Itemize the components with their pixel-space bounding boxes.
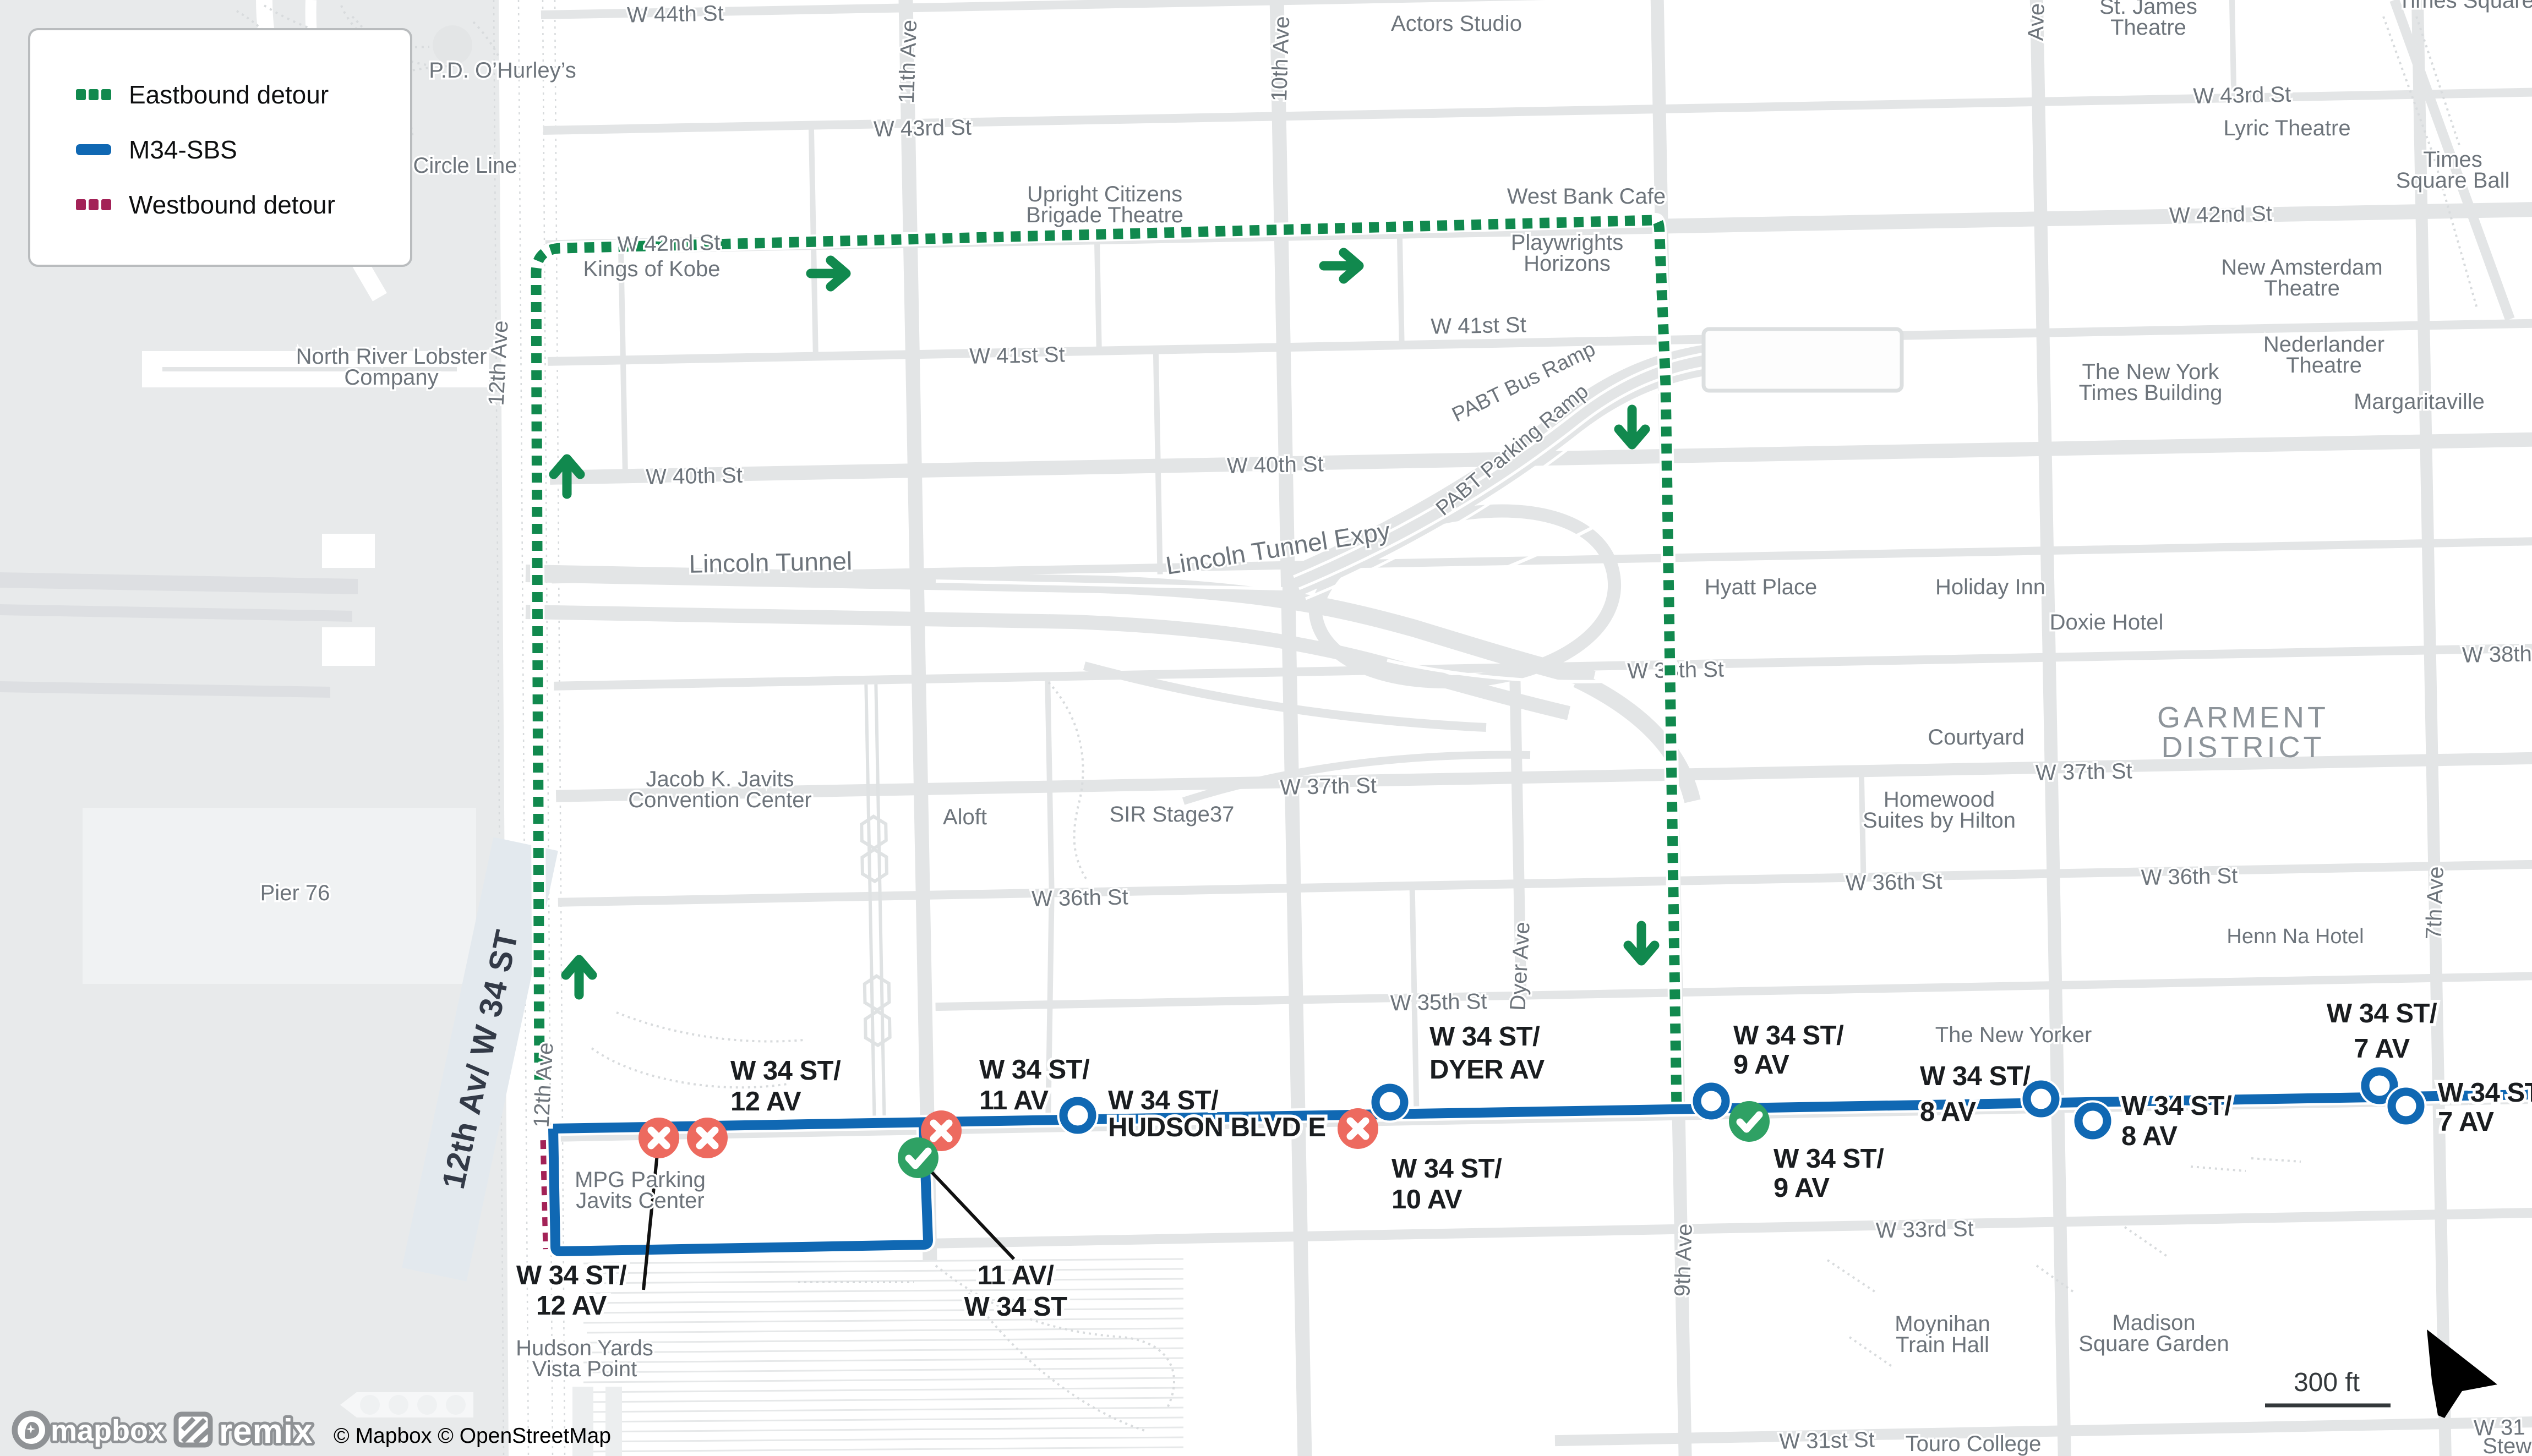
svg-text:W 38th St: W 38th St xyxy=(2462,641,2532,667)
svg-text:10 AV: 10 AV xyxy=(1391,1185,1463,1214)
svg-text:W 34 ST/: W 34 ST/ xyxy=(1108,1086,1219,1115)
svg-text:W 44th St: W 44th St xyxy=(627,1,724,27)
svg-text:W 36th St: W 36th St xyxy=(1845,869,1942,895)
svg-text:W 37th St: W 37th St xyxy=(1280,774,1377,800)
svg-text:W 34 ST/: W 34 ST/ xyxy=(730,1056,841,1086)
svg-text:Pier 76: Pier 76 xyxy=(260,881,330,905)
svg-text:W 41st St: W 41st St xyxy=(1431,313,1526,338)
svg-text:Javits Center: Javits Center xyxy=(576,1189,704,1213)
svg-text:7 AV: 7 AV xyxy=(2354,1034,2410,1064)
svg-text:W 43rd St: W 43rd St xyxy=(874,116,972,141)
svg-text:Henn Na Hotel: Henn Na Hotel xyxy=(2227,925,2364,948)
svg-text:W 42nd St: W 42nd St xyxy=(617,231,721,257)
svg-text:300 ft: 300 ft xyxy=(2294,1368,2360,1397)
svg-text:W 40th St: W 40th St xyxy=(1227,452,1324,478)
svg-text:W 34 ST/: W 34 ST/ xyxy=(2327,999,2437,1028)
svg-text:Lyric Theatre: Lyric Theatre xyxy=(2223,116,2350,140)
svg-text:Times Square: Times Square xyxy=(2398,0,2532,13)
svg-text:M34-SBS: M34-SBS xyxy=(129,135,237,164)
svg-text:12th Ave: 12th Ave xyxy=(530,1042,558,1128)
svg-text:DISTRICT: DISTRICT xyxy=(2162,731,2325,764)
svg-text:mapbox: mapbox xyxy=(51,1414,165,1447)
svg-text:West Bank Cafe: West Bank Cafe xyxy=(1507,184,1666,209)
svg-text:W 31st St: W 31st St xyxy=(1779,1428,1875,1454)
svg-text:Hyatt Place: Hyatt Place xyxy=(1705,575,1818,599)
svg-text:Aloft: Aloft xyxy=(943,805,987,829)
svg-text:Eastbound detour: Eastbound detour xyxy=(129,80,329,109)
svg-text:Horizons: Horizons xyxy=(1524,251,1611,276)
svg-text:Convention Center: Convention Center xyxy=(628,788,812,812)
svg-text:Stewart: Stewart xyxy=(2482,1434,2532,1456)
svg-text:Kings of Kobe: Kings of Kobe xyxy=(583,257,720,281)
svg-text:9 AV: 9 AV xyxy=(1733,1050,1789,1080)
svg-text:Margaritaville: Margaritaville xyxy=(2354,390,2485,414)
svg-text:W 43rd St: W 43rd St xyxy=(2193,83,2291,108)
svg-text:Touro College: Touro College xyxy=(1906,1432,2042,1456)
svg-text:W 37th St: W 37th St xyxy=(2036,759,2132,785)
svg-text:W 41st St: W 41st St xyxy=(969,342,1065,368)
svg-text:Company: Company xyxy=(344,365,438,390)
svg-text:Square Ball: Square Ball xyxy=(2396,168,2510,193)
svg-text:W 34 ST: W 34 ST xyxy=(964,1292,1067,1322)
svg-text:DYER AV: DYER AV xyxy=(1429,1055,1545,1085)
svg-text:W 34 ST/: W 34 ST/ xyxy=(1920,1061,2031,1091)
svg-text:12th Ave: 12th Ave xyxy=(484,320,513,406)
svg-text:W 34 ST/: W 34 ST/ xyxy=(979,1055,1090,1085)
svg-text:Doxie Hotel: Doxie Hotel xyxy=(2050,610,2164,634)
svg-text:W 34 ST/: W 34 ST/ xyxy=(2121,1091,2232,1121)
svg-text:Train Hall: Train Hall xyxy=(1896,1333,1989,1357)
svg-text:7 AV: 7 AV xyxy=(2438,1107,2494,1137)
svg-text:W 36th St: W 36th St xyxy=(2141,864,2238,890)
svg-text:Westbound detour: Westbound detour xyxy=(129,190,335,219)
svg-text:GARMENT: GARMENT xyxy=(2157,701,2329,734)
svg-text:12 AV: 12 AV xyxy=(536,1291,607,1321)
svg-text:11 AV: 11 AV xyxy=(979,1086,1049,1115)
svg-text:11 AV/: 11 AV/ xyxy=(978,1261,1055,1290)
svg-text:SIR Stage37: SIR Stage37 xyxy=(1110,802,1235,826)
svg-text:HUDSON BLVD E: HUDSON BLVD E xyxy=(1108,1113,1326,1142)
svg-text:W 40th St: W 40th St xyxy=(646,463,743,489)
svg-text:W 34 ST/: W 34 ST/ xyxy=(516,1261,627,1290)
svg-text:7th Ave: 7th Ave xyxy=(2421,866,2448,940)
svg-text:Circle Line: Circle Line xyxy=(413,154,517,178)
svg-text:Theatre: Theatre xyxy=(2286,353,2362,377)
svg-text:Courtyard: Courtyard xyxy=(1928,725,2024,749)
svg-text:8 AV: 8 AV xyxy=(1920,1097,1976,1127)
svg-text:Brigade Theatre: Brigade Theatre xyxy=(1026,203,1183,227)
svg-text:Theatre: Theatre xyxy=(2110,15,2186,40)
svg-text:Vista Point: Vista Point xyxy=(532,1357,637,1381)
svg-text:remix: remix xyxy=(219,1413,313,1450)
svg-text:W 35th St: W 35th St xyxy=(1390,989,1487,1015)
svg-text:12 AV: 12 AV xyxy=(730,1087,801,1116)
svg-text:Square Garden: Square Garden xyxy=(2078,1332,2229,1356)
svg-text:10th Ave: 10th Ave xyxy=(1267,16,1294,102)
svg-text:W 34 ST/: W 34 ST/ xyxy=(1733,1021,1844,1050)
svg-text:Theatre: Theatre xyxy=(2264,276,2340,300)
svg-text:11th Ave: 11th Ave xyxy=(894,19,921,103)
svg-text:W 34 ST/: W 34 ST/ xyxy=(1391,1154,1502,1184)
svg-text:W 33rd St: W 33rd St xyxy=(1875,1217,1974,1242)
svg-text:P.D. O’Hurley’s: P.D. O’Hurley’s xyxy=(429,58,576,83)
svg-text:9 AV: 9 AV xyxy=(1774,1173,1830,1203)
svg-text:W 34 ST/: W 34 ST/ xyxy=(2438,1078,2532,1108)
svg-text:Actors Studio: Actors Studio xyxy=(1391,12,1522,36)
svg-text:Times Building: Times Building xyxy=(2079,381,2223,405)
svg-text:Suites by Hilton: Suites by Hilton xyxy=(1863,808,2016,833)
svg-text:© Mapbox © OpenStreetMap: © Mapbox © OpenStreetMap xyxy=(334,1424,611,1448)
svg-text:The New Yorker: The New Yorker xyxy=(1935,1023,2092,1047)
svg-text:Holiday Inn: Holiday Inn xyxy=(1935,575,2045,599)
svg-text:9th Ave: 9th Ave xyxy=(1670,1223,1697,1297)
svg-text:Lincoln Tunnel: Lincoln Tunnel xyxy=(689,546,853,578)
svg-text:Dyer Ave: Dyer Ave xyxy=(1505,921,1534,1011)
svg-text:W 34 ST/: W 34 ST/ xyxy=(1774,1144,1884,1174)
svg-text:W 36th St: W 36th St xyxy=(1032,885,1128,911)
svg-text:Ave: Ave xyxy=(2023,3,2049,41)
svg-text:8 AV: 8 AV xyxy=(2121,1121,2178,1151)
svg-text:W 42nd St: W 42nd St xyxy=(2169,201,2273,228)
svg-text:W 34 ST/: W 34 ST/ xyxy=(1429,1022,1540,1052)
